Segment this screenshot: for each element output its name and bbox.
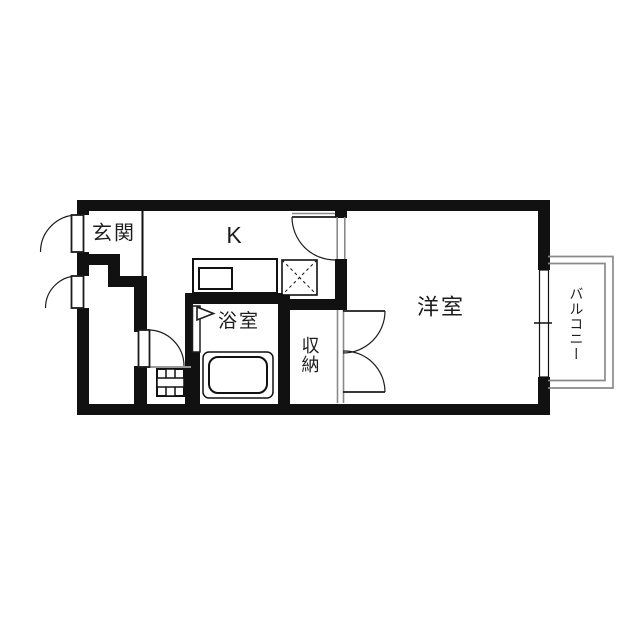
floor-plan-drawing [0,0,640,640]
closet-double-door [343,311,385,392]
service-door [46,276,84,308]
floor-plan: 玄関 K 浴室 収納 洋室 バルコニー [0,0,640,640]
room-label-bathroom: 浴室 [218,312,260,332]
room-label-balcony: バルコニー [569,287,584,362]
room-label-closet: 収納 [300,336,319,374]
entry-door [41,215,84,252]
room-label-western-room: 洋室 [417,295,465,318]
room-label-kitchen: K [226,223,241,247]
kitchen-sink [199,268,232,289]
bathroom-folding-door [193,306,214,352]
bathtub [203,352,273,398]
room-label-genkan: 玄関 [92,224,136,245]
utility-room-door [139,330,192,367]
sliding-window [534,270,552,377]
kitchen-door [292,214,335,261]
closet-doorway-frame [335,310,347,403]
kitchen-counter [193,259,277,293]
refrigerator-space [282,260,317,295]
washing-machine-pan [157,369,184,396]
kitchen-doorway-frame [335,217,347,259]
